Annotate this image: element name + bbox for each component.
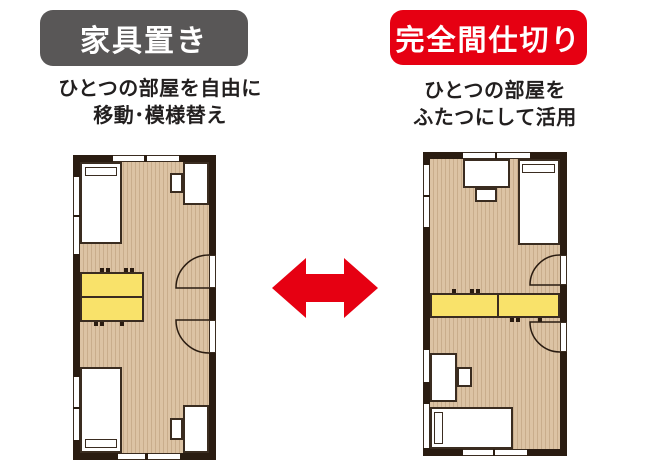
window xyxy=(497,152,530,159)
table-dot xyxy=(94,322,98,326)
double-arrow-icon xyxy=(272,258,378,318)
door-leaf xyxy=(560,255,567,285)
bed-pillow xyxy=(522,164,555,173)
bed xyxy=(518,159,560,245)
table-dot xyxy=(120,322,124,326)
movable-table xyxy=(80,272,144,322)
window xyxy=(73,217,80,254)
window xyxy=(73,377,80,407)
chair xyxy=(170,418,183,440)
left-badge: 家具置き xyxy=(40,10,248,66)
table-dot xyxy=(106,268,110,272)
partition-divider xyxy=(497,294,499,317)
window xyxy=(423,404,430,448)
right-subtitle-line2: ふたつにして活用 xyxy=(345,105,645,132)
bed-pillow xyxy=(85,167,117,176)
table-dot xyxy=(130,268,134,272)
table-divider xyxy=(81,296,143,298)
floorplan-comparison-infographic: 家具置き ひとつの部屋を自由に 移動･模様替え xyxy=(0,0,649,471)
desk xyxy=(183,162,209,205)
chair xyxy=(475,188,497,202)
bed xyxy=(80,367,122,453)
window xyxy=(73,177,80,215)
desk xyxy=(463,159,510,188)
bed xyxy=(430,407,513,449)
window xyxy=(147,155,179,162)
window xyxy=(423,197,430,227)
partition-shelf xyxy=(430,293,560,318)
partition-dot xyxy=(516,318,520,322)
window xyxy=(423,165,430,195)
right-floorplan xyxy=(423,152,567,456)
desk xyxy=(430,353,457,402)
left-subtitle-line1: ひとつの部屋を自由に xyxy=(10,76,310,103)
chair xyxy=(457,367,472,387)
table-dot xyxy=(100,268,104,272)
chair xyxy=(170,173,183,193)
left-subtitle-line2: 移動･模様替え xyxy=(10,103,310,130)
window xyxy=(113,155,144,162)
bed-pillow xyxy=(434,412,443,444)
window xyxy=(463,152,495,159)
partition-dot xyxy=(452,289,456,293)
door-leaf xyxy=(560,322,567,352)
partition-dot xyxy=(476,289,480,293)
partition-dot xyxy=(538,318,542,322)
window xyxy=(73,409,80,440)
window xyxy=(495,449,527,456)
left-floorplan xyxy=(73,155,216,460)
bed xyxy=(80,162,122,244)
window xyxy=(118,453,145,460)
right-badge: 完全間仕切り xyxy=(390,10,587,65)
left-subtitle: ひとつの部屋を自由に 移動･模様替え xyxy=(10,76,310,130)
partition-dot xyxy=(510,318,514,322)
bed-pillow xyxy=(85,439,117,448)
door-leaf xyxy=(209,320,216,353)
table-dot xyxy=(124,268,128,272)
window xyxy=(423,350,430,382)
right-subtitle-line1: ひとつの部屋を xyxy=(345,78,645,105)
door-leaf xyxy=(209,255,216,288)
table-dot xyxy=(100,322,104,326)
desk xyxy=(183,405,209,453)
right-subtitle: ひとつの部屋を ふたつにして活用 xyxy=(345,78,645,132)
window xyxy=(148,453,180,460)
partition-dot xyxy=(470,289,474,293)
window xyxy=(463,449,493,456)
